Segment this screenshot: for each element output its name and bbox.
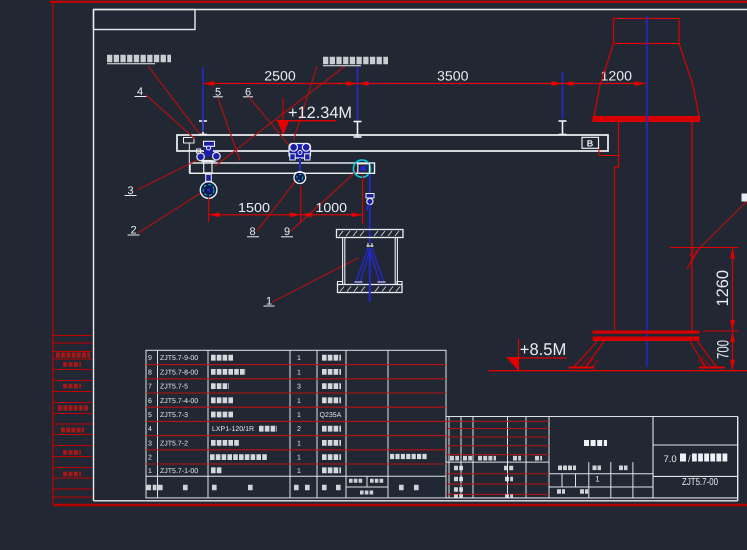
svg-text:1: 1 <box>148 468 152 475</box>
svg-text:9: 9 <box>284 226 290 238</box>
svg-text:2500: 2500 <box>264 69 296 84</box>
svg-text:8: 8 <box>249 226 255 238</box>
svg-text:1: 1 <box>297 455 301 462</box>
svg-text:1000: 1000 <box>316 200 348 215</box>
svg-text:ZJT5.7-00: ZJT5.7-00 <box>682 477 718 488</box>
svg-text:Q235A: Q235A <box>320 412 342 419</box>
svg-text:1: 1 <box>297 412 301 419</box>
svg-text:6: 6 <box>148 398 152 405</box>
svg-text:ZJT5.7-1-00: ZJT5.7-1-00 <box>160 468 198 475</box>
svg-text:7.0: 7.0 <box>664 454 677 465</box>
svg-text:+12.34M: +12.34M <box>288 104 352 122</box>
svg-text:ZJT5.7-5: ZJT5.7-5 <box>160 384 188 391</box>
svg-text:ZJT5.7-9-00: ZJT5.7-9-00 <box>160 355 198 362</box>
svg-text:1: 1 <box>595 475 600 484</box>
svg-text:2: 2 <box>148 455 152 462</box>
svg-text:3500: 3500 <box>437 69 469 84</box>
svg-text:B: B <box>587 138 594 148</box>
svg-text:+8.5M: +8.5M <box>520 340 567 359</box>
svg-text:ZJT5.7-8-00: ZJT5.7-8-00 <box>160 369 198 376</box>
svg-text:8: 8 <box>148 369 152 376</box>
svg-text:ZJT5.7-4-00: ZJT5.7-4-00 <box>160 398 198 405</box>
svg-text:1260: 1260 <box>714 270 732 307</box>
svg-text:3: 3 <box>297 384 301 391</box>
svg-text:1: 1 <box>297 369 301 376</box>
svg-text:3: 3 <box>148 440 152 447</box>
svg-text:ZJT5.7-2: ZJT5.7-2 <box>160 440 188 447</box>
svg-text:/: / <box>688 454 691 465</box>
svg-text:5: 5 <box>148 412 152 419</box>
svg-text:1: 1 <box>297 355 301 362</box>
svg-text:1: 1 <box>297 440 301 447</box>
svg-text:7: 7 <box>148 384 152 391</box>
svg-text:1: 1 <box>297 398 301 405</box>
svg-text:9: 9 <box>148 355 152 362</box>
svg-text:1: 1 <box>297 468 301 475</box>
svg-text:ZJT5.7-3: ZJT5.7-3 <box>160 412 188 419</box>
svg-text:700: 700 <box>715 340 733 359</box>
svg-text:1500: 1500 <box>238 200 270 215</box>
svg-text:2: 2 <box>297 426 301 433</box>
svg-text:4: 4 <box>148 426 152 433</box>
svg-text:LXP1-120/1R: LXP1-120/1R <box>212 425 254 433</box>
